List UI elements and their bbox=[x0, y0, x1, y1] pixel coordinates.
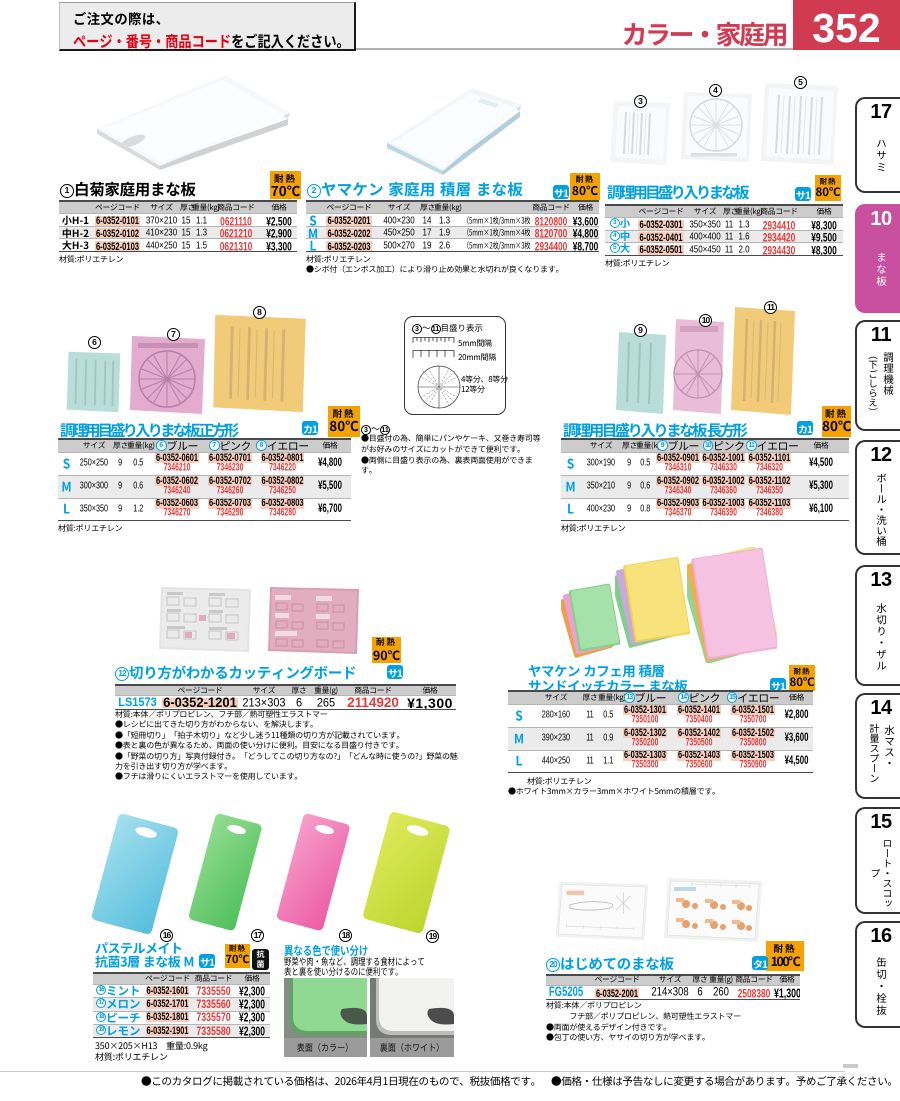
svg-text:表面（カラー）: 表面（カラー） bbox=[297, 1040, 353, 1054]
svg-text:裏面（ホワイト）: 裏面（ホワイト） bbox=[380, 1040, 444, 1054]
